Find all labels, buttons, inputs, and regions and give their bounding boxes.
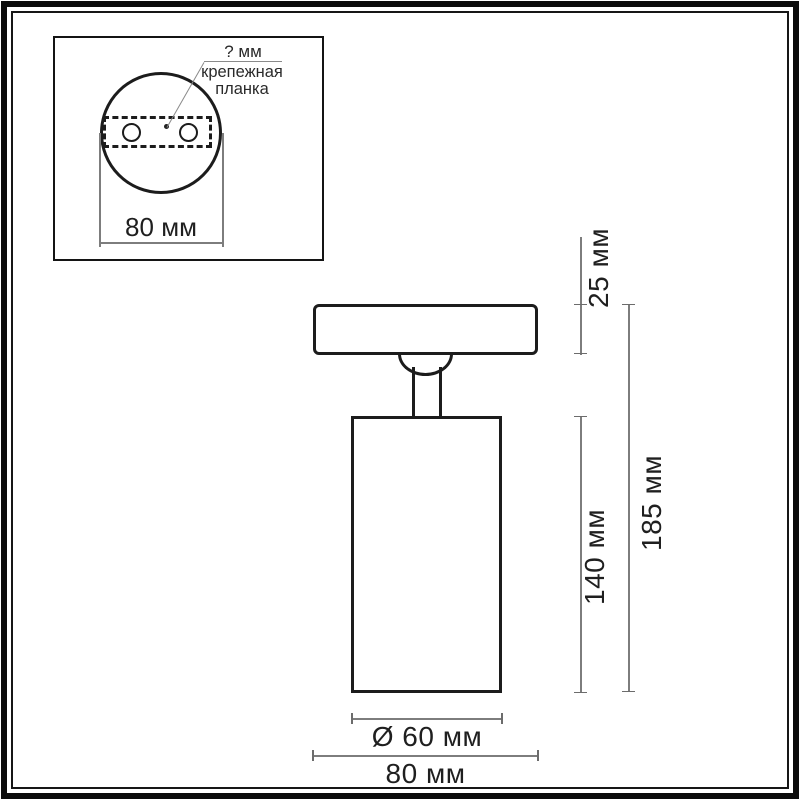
bracket-label-line1: крепежная <box>192 64 292 81</box>
bracket-label: крепежная планка <box>192 64 292 97</box>
diagram-canvas: ? мм крепежная планка 80 мм 25 мм 140 мм… <box>0 0 800 800</box>
bracket-label-line2: планка <box>192 81 292 98</box>
canopy-width-value: 80 мм <box>313 758 538 790</box>
body-height-value: 140 мм <box>581 477 609 637</box>
canopy-height-value: 25 мм <box>585 208 613 328</box>
ceiling-canopy-plate <box>313 304 538 355</box>
body-diameter-value: Ø 60 мм <box>337 721 517 753</box>
inset-plate-width-value: 80 мм <box>99 212 223 243</box>
dim-tick <box>574 416 587 418</box>
dim-tick <box>574 353 587 355</box>
dim-tick <box>622 691 635 693</box>
screw-hole-right <box>179 123 198 142</box>
dim-tick <box>622 304 635 306</box>
dim-line-total-height <box>628 304 630 692</box>
dim-line-canopy-width <box>313 755 538 757</box>
total-height-value: 185 мм <box>638 423 666 583</box>
dim-line-body-diameter <box>352 718 502 720</box>
dim-line-canopy-height <box>580 237 582 355</box>
screw-hole-left <box>122 123 141 142</box>
hole-pitch-label: ? мм <box>200 42 286 62</box>
dim-tick <box>574 692 587 694</box>
lamp-cylinder-body <box>351 416 502 693</box>
